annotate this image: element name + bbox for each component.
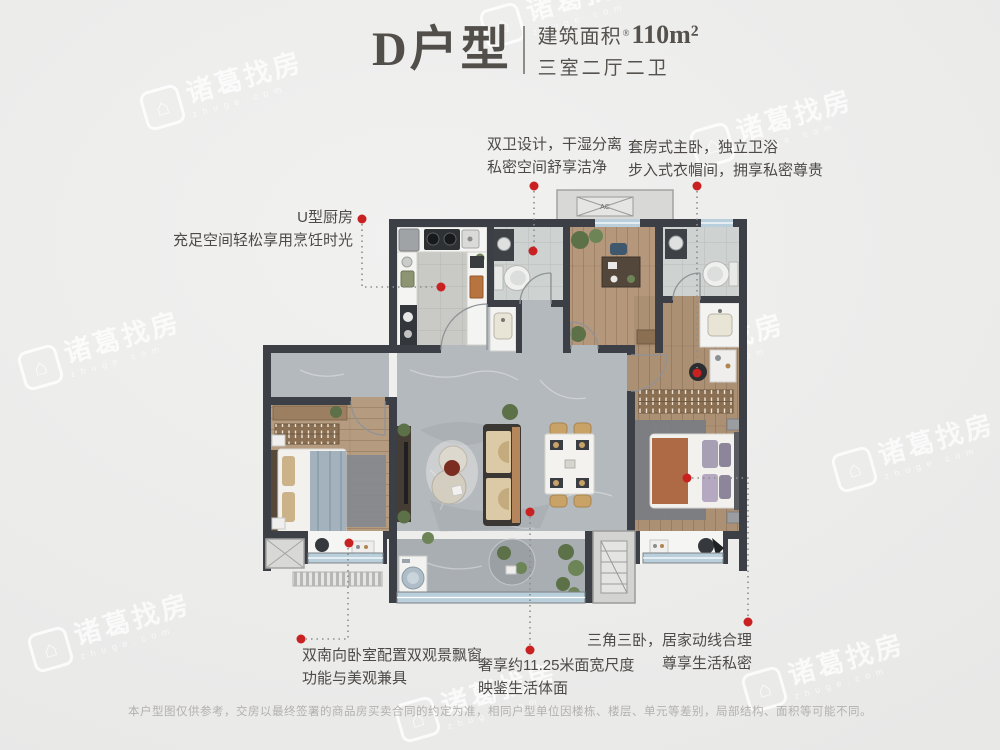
toilet-icon (703, 262, 738, 287)
dot-bath-target (529, 247, 538, 256)
annotation-bedroom-layout: 三角三卧，居家动线合理 尊享生活私密 (587, 629, 752, 675)
washbasin-icon (490, 302, 516, 351)
nightstand-icon (727, 419, 740, 430)
nightstand-icon (272, 518, 285, 529)
bay-window-bedroom2 (304, 531, 387, 564)
radio-icon (650, 540, 668, 553)
annotation-line: 步入式衣帽间，拥享私密尊贵 (628, 159, 823, 182)
plant-cluster-icon (422, 532, 434, 544)
plant-icon (571, 231, 589, 249)
plant-icon (589, 229, 603, 243)
utility-shaft (593, 531, 635, 603)
ac-label: AC (600, 204, 610, 211)
plant-icon (497, 546, 511, 560)
registered-mark: ® (623, 28, 631, 38)
bay-window-master (635, 531, 728, 564)
louver-grille (293, 572, 382, 586)
round-rug (489, 539, 535, 585)
chair-icon (315, 538, 329, 552)
header-divider (523, 26, 525, 74)
dot-width-target (526, 508, 535, 517)
annotation-master-suite: 套房式主卧，独立卫浴 步入式衣帽间，拥享私密尊贵 (628, 136, 823, 182)
fridge-icon (399, 229, 419, 251)
suite-washbasin-icon (700, 303, 739, 347)
plant-icon (515, 562, 527, 574)
annotation-line: 双南向卧室配置双观景飘窗 (302, 644, 482, 667)
chair-icon (698, 538, 714, 554)
area-line: 建筑面积®110m² (538, 20, 699, 50)
plan-title: D户型 (372, 24, 512, 77)
plant-icon (330, 406, 342, 418)
dot-bed2-label (297, 635, 306, 644)
wardrobe-icon (639, 390, 733, 413)
area-prefix: 建筑面积 (538, 20, 622, 49)
annotation-line: 功能与美观兼具 (302, 667, 482, 690)
annotation-line: 尊享生活私密 (587, 652, 752, 675)
ac-platform-bottom (266, 539, 304, 568)
annotation-line: 映鉴生活体面 (478, 677, 634, 700)
rooms-line: 三室二厅二卫 (538, 53, 699, 80)
annotation-bathrooms: 双卫设计，干湿分离 私密空间舒享洁净 (487, 133, 622, 179)
washing-machine-icon (399, 556, 427, 594)
dot-kitchen-target (437, 283, 446, 292)
annotation-line: 双卫设计，干湿分离 (487, 133, 622, 156)
nightstand-icon (272, 435, 285, 446)
stove-icon (424, 229, 460, 250)
dot-bath-label (530, 182, 539, 191)
desk-icon (602, 257, 640, 287)
sofa-icon (483, 424, 521, 526)
area-value: 110m² (632, 20, 699, 50)
annotation-south-bedrooms: 双南向卧室配置双观景飘窗 功能与美观兼具 (302, 644, 482, 690)
tv-cabinet-icon (397, 424, 411, 524)
annotation-line: 三角三卧，居家动线合理 (587, 629, 752, 652)
annotation-line: U型厨房 (173, 206, 353, 229)
disclaimer-text: 本户型图仅供参考，交房以最终签署的商品房买卖合同的约定为准，相同户型单位因楼栋、… (0, 703, 1000, 719)
coffee-table-icon (426, 440, 478, 504)
dot-kitchen-label (358, 215, 367, 224)
floor-plan: AC (0, 0, 1000, 750)
floor-plan-page: ⌂诸葛找房zhuge.com ⌂诸葛找房zhuge.com ⌂诸葛找房zhuge… (0, 0, 1000, 750)
dot-master-label (744, 618, 753, 627)
cutting-board-icon (470, 276, 483, 298)
dining-set (545, 423, 594, 507)
plant-icon (570, 326, 586, 342)
nightstand-icon (727, 512, 740, 523)
cabinet-icon (400, 305, 417, 345)
annotation-kitchen: U型厨房 充足空间轻松享用烹饪时光 (173, 206, 353, 252)
dot-bed2-target (345, 539, 354, 548)
master-bed (650, 432, 742, 510)
plan-header: D户型 建筑面积®110m² 三室二厅二卫 (372, 20, 699, 80)
plan-summary: 建筑面积®110m² 三室二厅二卫 (538, 20, 699, 80)
annotation-line: 充足空间轻松享用烹饪时光 (173, 229, 353, 252)
dot-suite-label (693, 182, 702, 191)
annotation-line: 套房式主卧，独立卫浴 (628, 136, 823, 159)
dot-master-target (683, 474, 692, 483)
plant-icon (502, 404, 518, 420)
chair-icon (610, 243, 627, 255)
ac-platform-top: AC (557, 190, 673, 224)
kitchen-sink-icon (462, 230, 479, 248)
dot-suite-target (693, 369, 702, 378)
annotation-line: 私密空间舒享洁净 (487, 156, 622, 179)
